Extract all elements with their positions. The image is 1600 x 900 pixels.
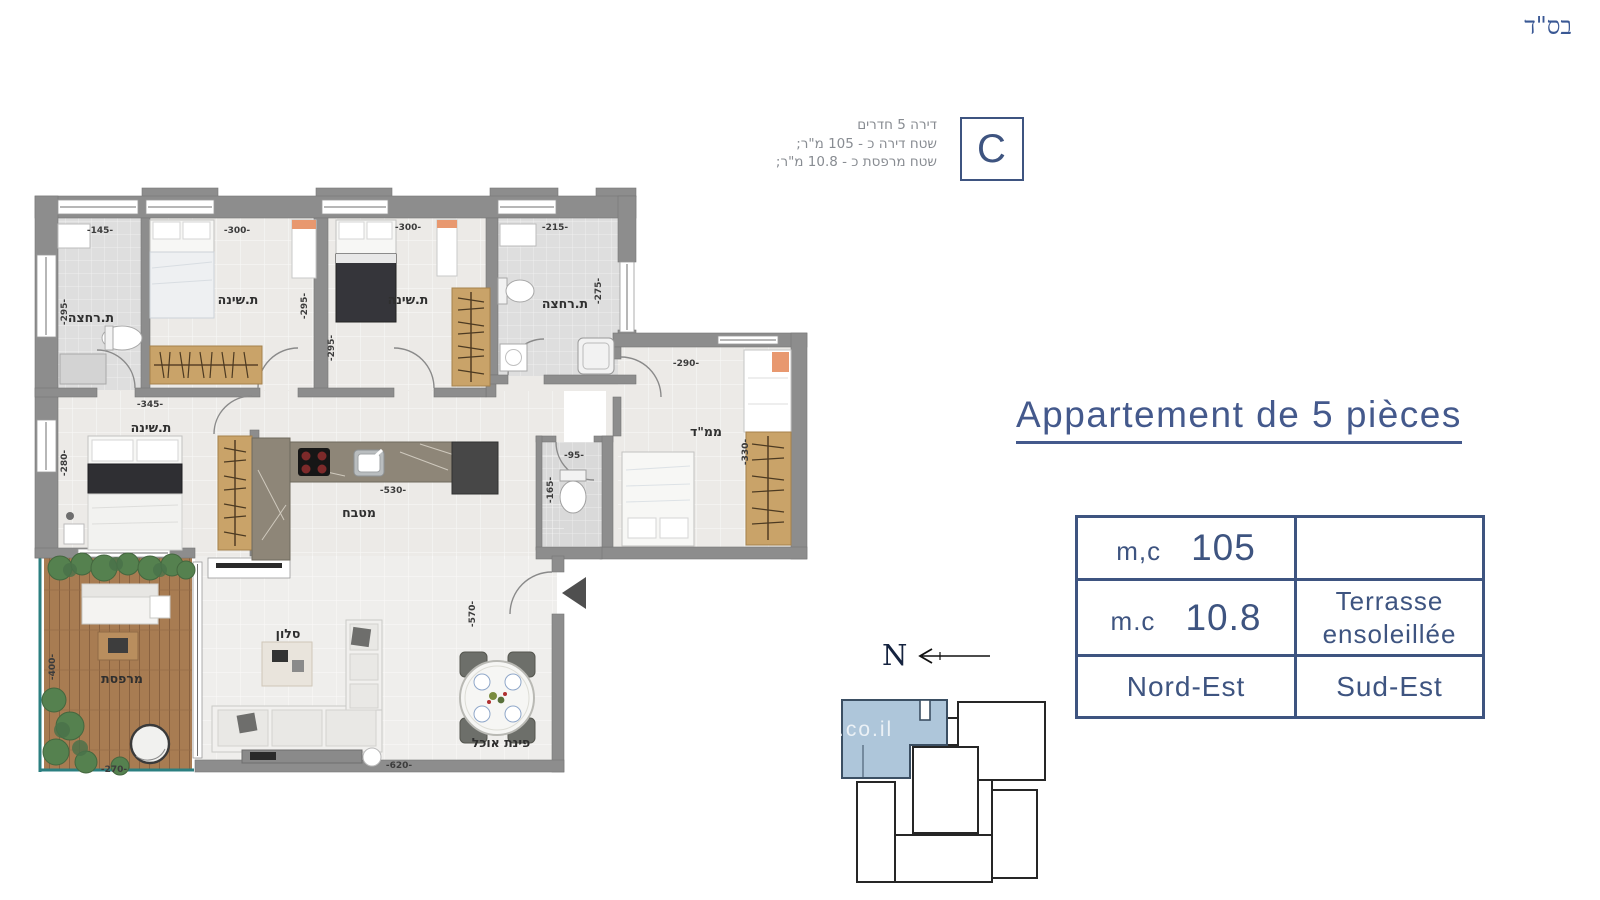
dim-kitchen-w: -530- bbox=[380, 486, 407, 496]
table-cell-empty bbox=[1294, 518, 1482, 578]
dim-living-h: -570- bbox=[468, 601, 478, 628]
dim-mamad-w: -290- bbox=[673, 359, 700, 369]
label-master-bedroom: ת.שינה bbox=[131, 420, 172, 435]
terrace-area-value: 10.8 bbox=[1185, 597, 1261, 639]
dim-wc-h: -165- bbox=[546, 477, 556, 504]
compass: N bbox=[880, 638, 1010, 678]
unit-letter-box: C bbox=[960, 117, 1024, 181]
dim-master-h: -280- bbox=[60, 450, 70, 477]
wc-fixtures bbox=[560, 470, 586, 513]
label-bedroom3: ת.שינה bbox=[388, 292, 429, 307]
floor-plan: ת.רחצה ת.שינה ת.שינה ת.רחצה ת.שינה מטבח … bbox=[0, 0, 830, 900]
table-cell-terrace: Terrasse ensoleillée bbox=[1294, 578, 1482, 654]
table-cell-terrace-area: m.c 10.8 bbox=[1078, 578, 1294, 654]
label-mamad: ממ"ד bbox=[690, 424, 722, 439]
master-bedroom-furniture bbox=[64, 436, 252, 550]
bsd-blessing: בס"ד bbox=[1452, 12, 1572, 41]
dim-bed2-h: -295- bbox=[300, 293, 310, 320]
dim-master-w: -345- bbox=[137, 400, 164, 410]
label-bathroom2: ת.רחצה bbox=[542, 296, 588, 311]
area-label: m,c bbox=[1116, 536, 1161, 567]
area-value: 105 bbox=[1191, 527, 1256, 569]
dim-bed2-w: -300- bbox=[224, 226, 251, 236]
label-living: סלון bbox=[276, 626, 301, 641]
entrance-arrow-icon bbox=[562, 577, 586, 609]
dim-bath2-h: -275- bbox=[594, 278, 604, 305]
label-bedroom2: ת.שינה bbox=[218, 292, 259, 307]
dim-bed3-w: -300- bbox=[395, 223, 422, 233]
label-kitchen: מטבח bbox=[342, 505, 376, 520]
dim-mamad-h: -330- bbox=[741, 439, 751, 466]
spec-table: m,c 105 m.c 10.8 Terrasse ensoleillée No… bbox=[1075, 515, 1485, 719]
table-cell-orientation2: Sud-Est bbox=[1294, 654, 1482, 716]
page-title: Appartement de 5 pièces bbox=[1016, 394, 1536, 444]
north-letter: N bbox=[882, 638, 907, 672]
terrace-word1: Terrasse bbox=[1323, 585, 1457, 618]
site-key-plan bbox=[810, 680, 1060, 890]
dim-bath2-w: -215- bbox=[542, 223, 569, 233]
dining-set bbox=[460, 652, 535, 743]
dim-bath1-h: -295- bbox=[60, 299, 70, 326]
table-cell-area: m,c 105 bbox=[1078, 518, 1294, 578]
dim-bath1-w: -145- bbox=[87, 226, 114, 236]
dim-wc-w: -95- bbox=[564, 451, 584, 461]
label-balcony: מרפסת bbox=[101, 671, 143, 686]
dim-balcony-w: -270- bbox=[101, 765, 128, 775]
unit-letter: C bbox=[977, 127, 1007, 172]
terrace-area-label: m.c bbox=[1111, 606, 1156, 637]
label-bathroom1: ת.רחצה bbox=[68, 310, 114, 325]
dim-living-w: -620- bbox=[386, 761, 413, 771]
terrace-word2: ensoleillée bbox=[1323, 618, 1457, 651]
dim-bed3-h: -295- bbox=[327, 335, 337, 362]
dim-balcony-h: -400- bbox=[48, 654, 58, 681]
label-dining: פינת אוכל bbox=[472, 735, 531, 750]
table-cell-orientation1: Nord-Est bbox=[1078, 654, 1294, 716]
